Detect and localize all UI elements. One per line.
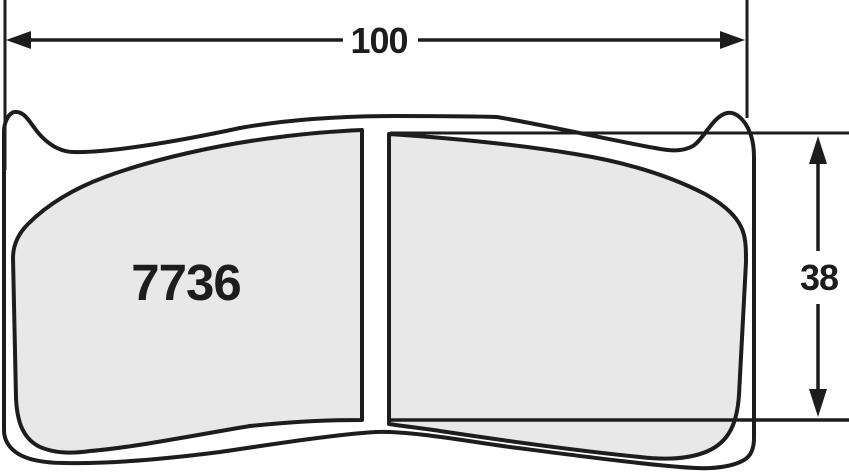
width-dimension-label: 100 — [350, 20, 407, 61]
height-arrowhead-down-icon — [809, 389, 827, 417]
height-dimension-label: 38 — [800, 257, 838, 298]
drawing-canvas: 100 38 7736 — [0, 0, 849, 472]
width-arrowhead-right-icon — [720, 31, 745, 49]
height-arrowhead-up-icon — [809, 136, 827, 164]
brake-pad-drawing: 100 38 7736 — [0, 0, 849, 472]
width-arrowhead-left-icon — [6, 31, 31, 49]
part-number-label: 7736 — [131, 254, 240, 311]
